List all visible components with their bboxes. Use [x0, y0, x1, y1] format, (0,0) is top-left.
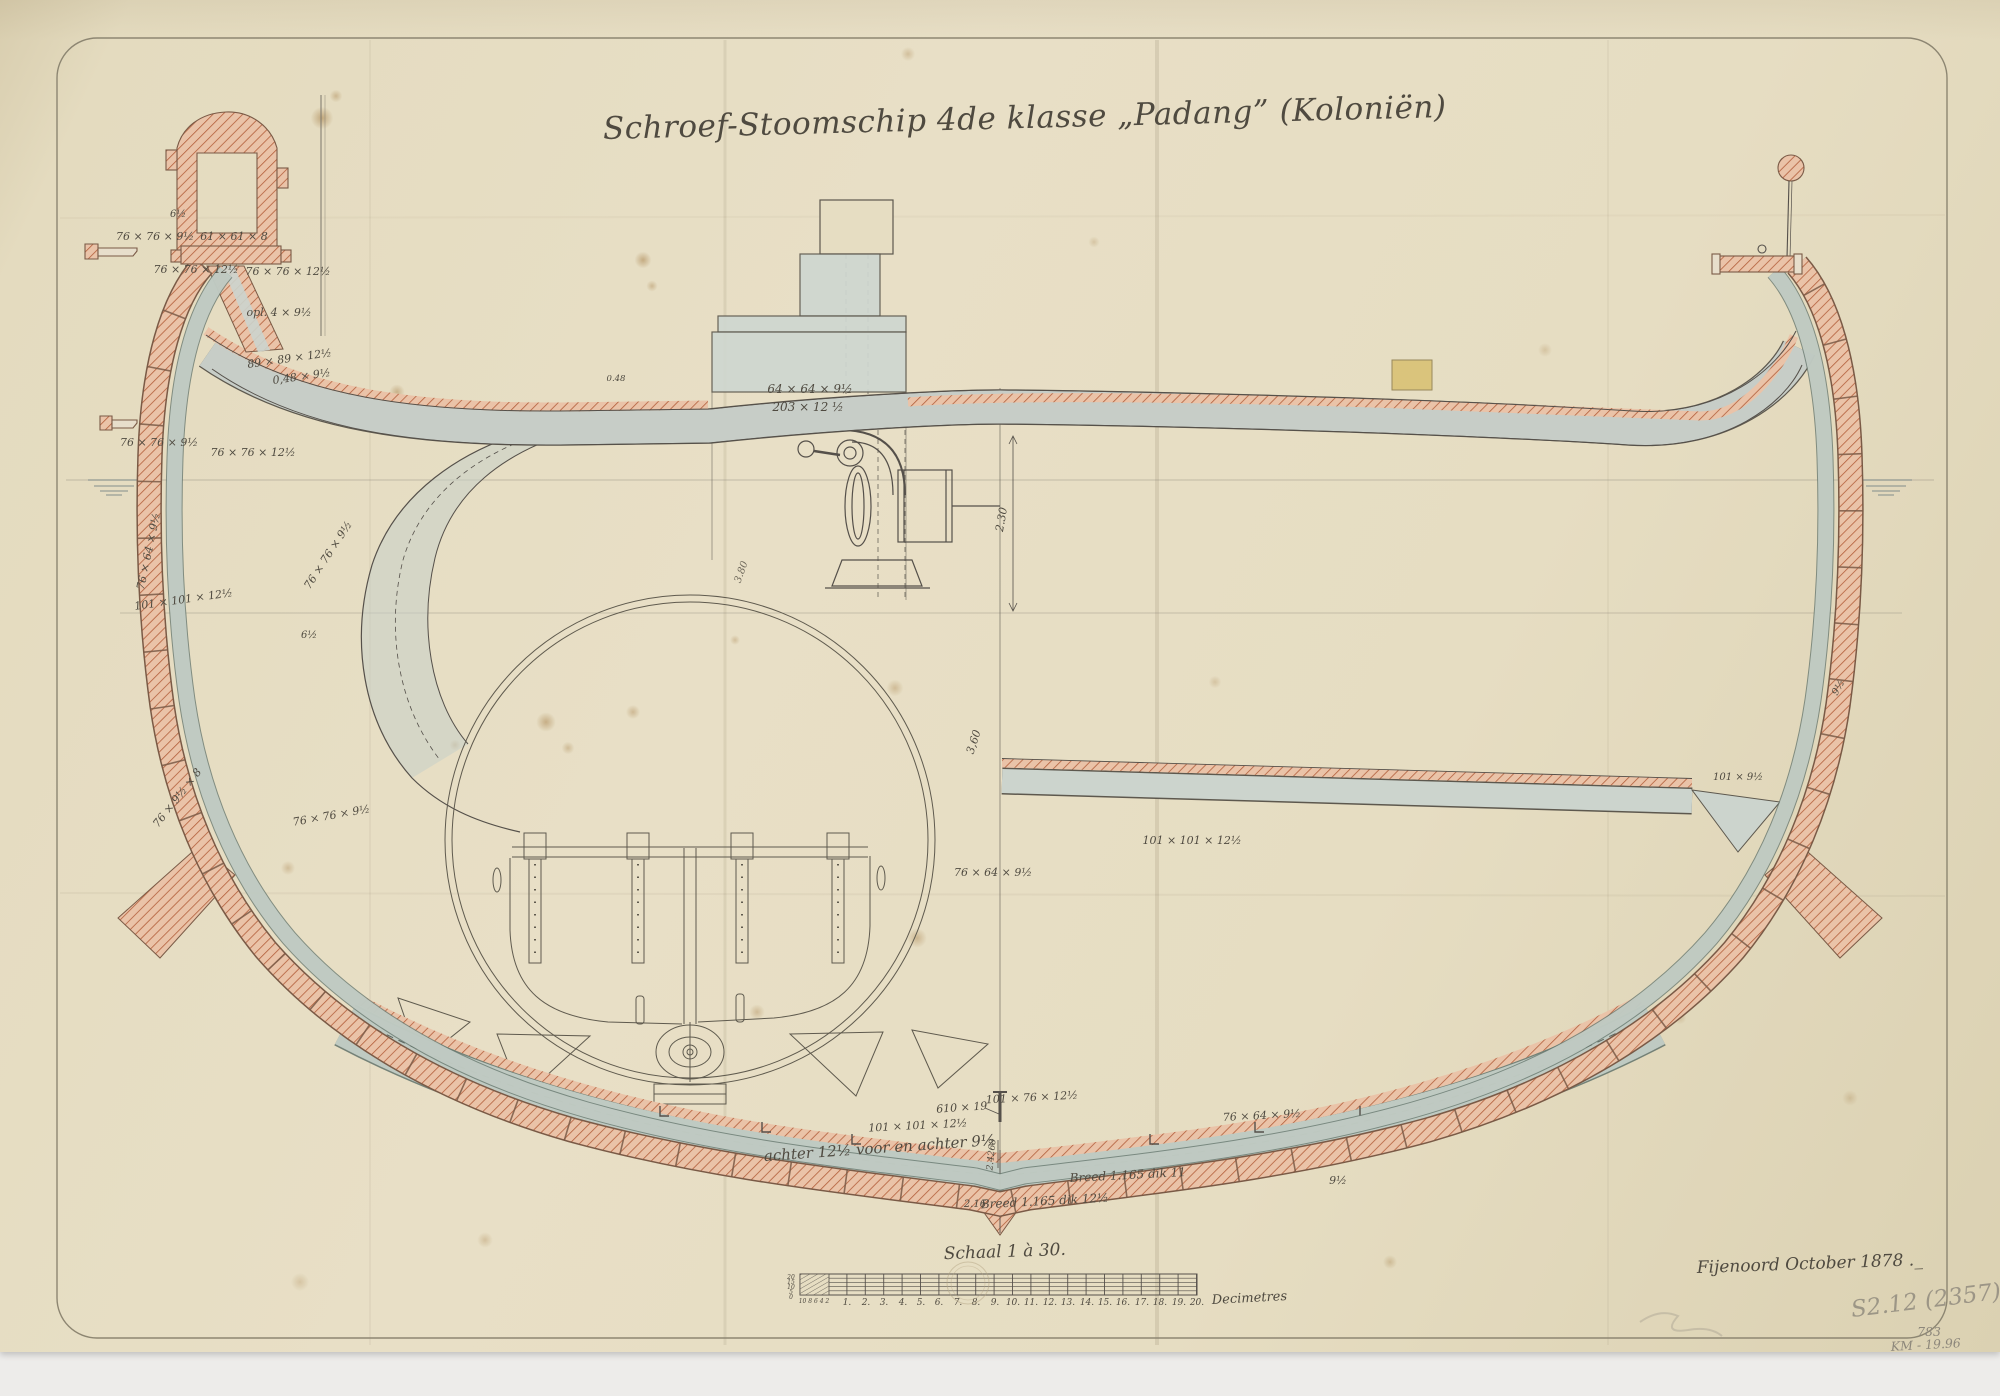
dimension-label: 76 × 76 × 9½: [301, 519, 354, 592]
scale-number: 19.: [1172, 1298, 1186, 1308]
scale-bar: Schaal 1 à 30. 20 15 10 5 0 10 8 6 4 2 1…: [786, 1240, 1288, 1308]
sheet-border: [57, 38, 1947, 1338]
drawing-title: Schroef-Stoomschip 4de klasse „Padang” (…: [603, 89, 1447, 147]
scale-number: 15.: [1098, 1298, 1112, 1308]
dimension-label: 101 × 101 × 12½: [1142, 834, 1241, 847]
boiler-saddle-pivot: [654, 1022, 726, 1104]
boiler-straps: [524, 833, 849, 963]
dimension-label: 76 × 76 × 12½: [245, 265, 330, 278]
wood-chock: [1392, 360, 1432, 390]
pencil-scribble: [1640, 1313, 1722, 1336]
scale-unit-label: Decimetres: [1210, 1289, 1287, 1308]
lower-deck-right: [1002, 759, 1780, 853]
scale-number: 17.: [1135, 1298, 1149, 1308]
scale-number: 10.: [1006, 1298, 1020, 1308]
ship-section-drawing: Schroef-Stoomschip 4de klasse „Padang” (…: [0, 0, 2000, 1396]
dimension-label: 76 × 76 × 12½: [153, 263, 238, 276]
scale-number: 4.: [898, 1298, 908, 1308]
archive-stamp-number: S2.12 (2357): [1850, 1279, 2000, 1323]
dimension-label: 101 × 9½: [1713, 772, 1763, 783]
dimension-lines: [985, 436, 1017, 1168]
dimension-label: 6½: [301, 630, 317, 641]
scale-caption: Schaal 1 à 30.: [943, 1240, 1066, 1264]
scale-sub-ticks: 10 8 6 4 2: [799, 1298, 830, 1305]
dimension-label: 203 × 12 ½: [771, 400, 843, 414]
scale-number: 1.: [843, 1298, 852, 1308]
boiler: [398, 595, 988, 1104]
dimension-label: 64 × 64 × 9½: [767, 382, 852, 396]
water-surface-marks-left: [88, 480, 140, 495]
dimension-label: 76 × 76 × 9½: [116, 230, 194, 243]
dimension-label: 0.48: [607, 374, 627, 384]
dimension-label: 2.30: [993, 506, 1010, 533]
scale-number: 3.: [880, 1298, 889, 1308]
dimension-label: 610 × 19: [936, 1099, 988, 1116]
main-deck: [206, 331, 1802, 446]
signature: Fijenoord October 1878 ._: [1695, 1250, 1923, 1278]
scale-number: 9.: [991, 1298, 1000, 1308]
bunker-wall: [361, 428, 575, 832]
dimension-label: 9½: [1329, 1174, 1347, 1187]
dimension-label: 76 × 76 × 12½: [210, 446, 295, 459]
dimension-label: 101 × 101 × 12½: [868, 1116, 968, 1134]
fold-creases: [60, 40, 1945, 1345]
scale-number: 5.: [917, 1298, 926, 1308]
dimension-label: 3.80: [733, 559, 751, 584]
scale-number: 13.: [1061, 1298, 1075, 1308]
scale-number: 16.: [1116, 1298, 1130, 1308]
scale-number: 2.: [861, 1298, 871, 1308]
scale-number: 20.: [1189, 1298, 1204, 1308]
scale-number: 18.: [1153, 1298, 1167, 1308]
dimension-label: 3,60: [964, 728, 984, 755]
dimension-label: 61 × 61 × 8: [200, 230, 267, 243]
scale-number: 14.: [1080, 1298, 1094, 1308]
scale-number: 11.: [1024, 1298, 1038, 1308]
scale-number: 6.: [935, 1298, 944, 1308]
dimension-label: 76 × 76 × 9½: [120, 436, 198, 449]
pencil-note: KM - 19.96: [1889, 1335, 1961, 1354]
dimension-label: 76 × 64 × 9½: [954, 866, 1032, 879]
dimension-label: opl. 4 × 9½: [246, 306, 311, 319]
scale-number: 12.: [1043, 1298, 1057, 1308]
dimension-label: 76 × 76 × 9½: [292, 802, 371, 828]
engine-casing: [712, 200, 906, 392]
water-surface-marks-right: [1860, 480, 1912, 495]
dimension-label: 6½: [170, 209, 186, 220]
scale-left-tick: 0: [789, 1294, 793, 1301]
windlass: [798, 430, 1000, 588]
